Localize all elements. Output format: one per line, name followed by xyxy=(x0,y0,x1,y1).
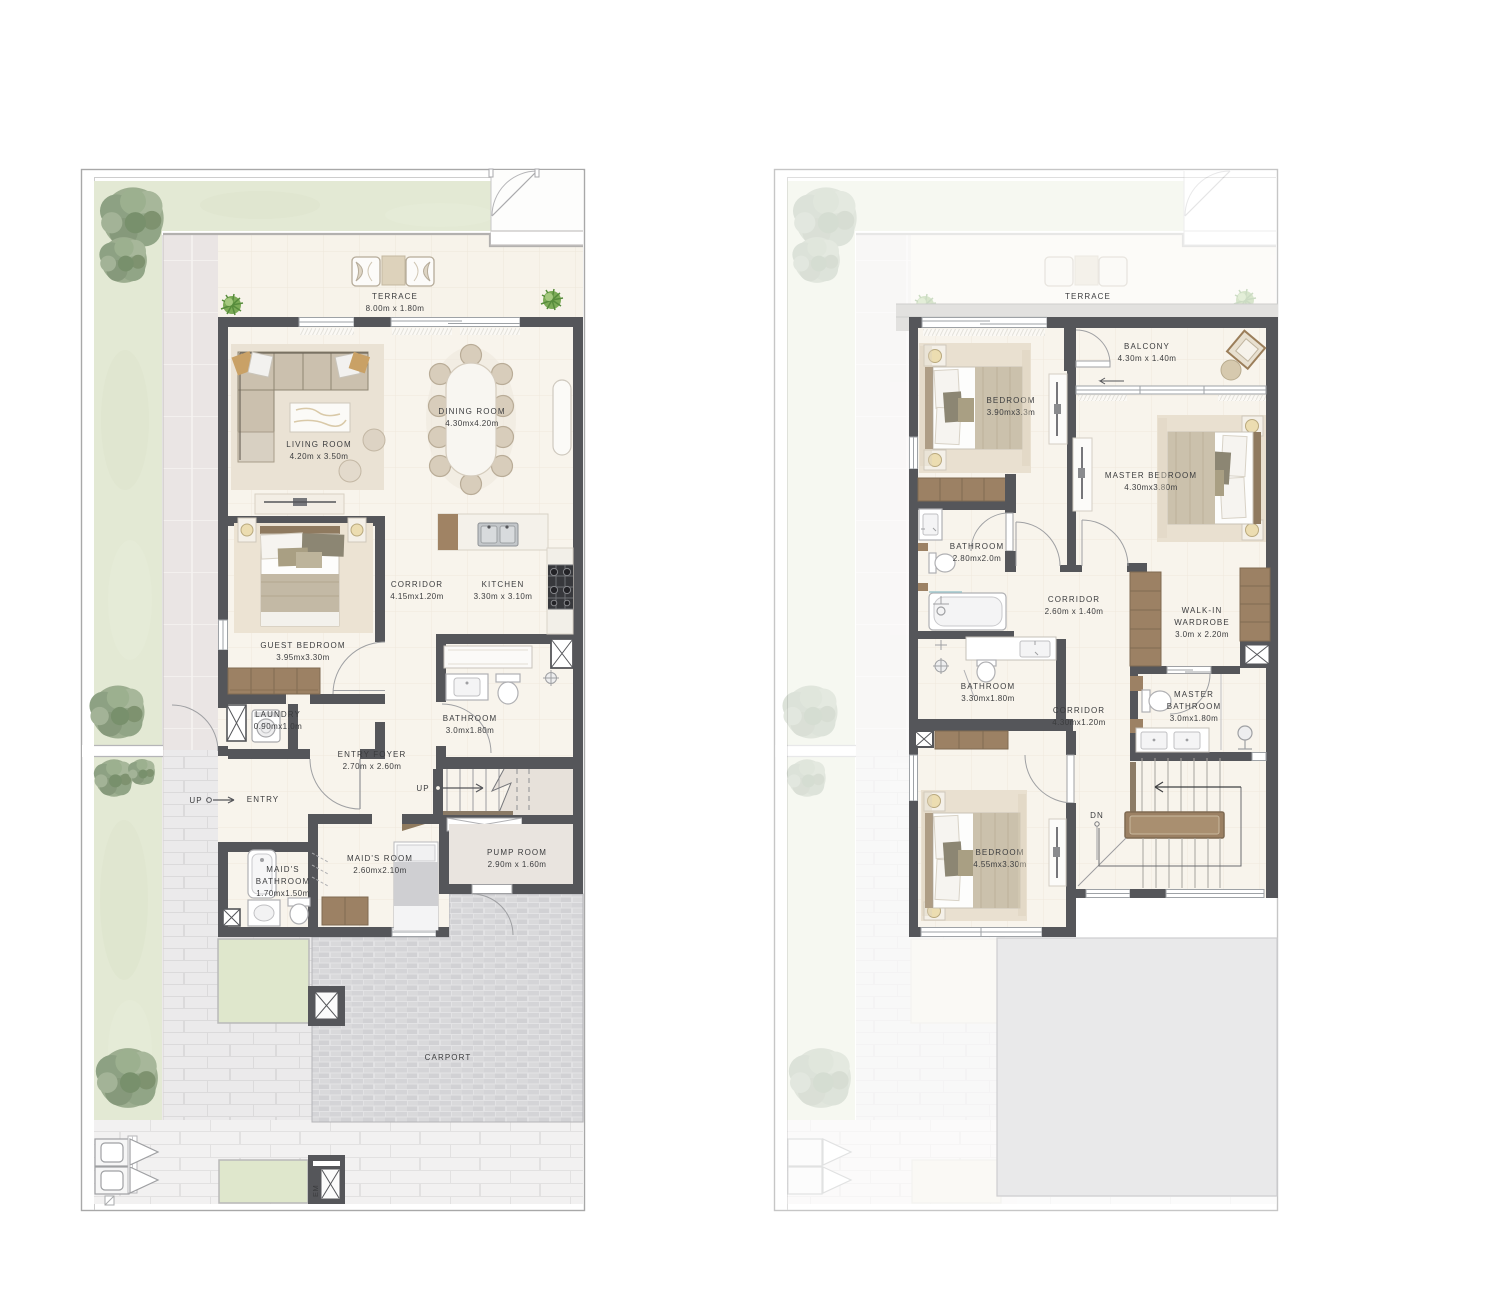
svg-text:KITCHEN: KITCHEN xyxy=(482,580,525,589)
svg-text:LIVING ROOM: LIVING ROOM xyxy=(286,440,351,449)
svg-text:0.90mx1.0m: 0.90mx1.0m xyxy=(254,722,303,731)
svg-text:2.60mx2.10m: 2.60mx2.10m xyxy=(353,866,406,875)
svg-text:BATHROOM: BATHROOM xyxy=(256,877,310,886)
svg-text:TERRACE: TERRACE xyxy=(1065,292,1111,301)
svg-text:2.90m x 1.60m: 2.90m x 1.60m xyxy=(488,860,547,869)
svg-text:3.0mx1.80m: 3.0mx1.80m xyxy=(1170,714,1219,723)
svg-text:CORRIDOR: CORRIDOR xyxy=(1048,595,1100,604)
svg-text:MAID'S: MAID'S xyxy=(266,865,299,874)
svg-text:GUEST BEDROOM: GUEST BEDROOM xyxy=(260,641,345,650)
svg-text:BATHROOM: BATHROOM xyxy=(1167,702,1221,711)
svg-text:MASTER: MASTER xyxy=(1174,690,1214,699)
svg-text:4.15mx1.20m: 4.15mx1.20m xyxy=(390,592,443,601)
svg-text:DINING ROOM: DINING ROOM xyxy=(438,407,505,416)
svg-text:WARDROBE: WARDROBE xyxy=(1174,618,1230,627)
svg-text:UP: UP xyxy=(416,784,429,793)
svg-text:BATHROOM: BATHROOM xyxy=(961,682,1015,691)
svg-text:TERRACE: TERRACE xyxy=(372,292,418,301)
svg-text:BATHROOM: BATHROOM xyxy=(443,714,497,723)
svg-text:UP: UP xyxy=(189,796,202,805)
svg-text:BATHROOM: BATHROOM xyxy=(950,542,1004,551)
svg-text:CARPORT: CARPORT xyxy=(425,1053,472,1062)
svg-text:MASTER BEDROOM: MASTER BEDROOM xyxy=(1105,471,1197,480)
svg-text:2.60m x 1.40m: 2.60m x 1.40m xyxy=(1045,607,1104,616)
svg-text:CORRIDOR: CORRIDOR xyxy=(1053,706,1105,715)
svg-text:3.0m x 2.20m: 3.0m x 2.20m xyxy=(1175,630,1229,639)
svg-text:CORRIDOR: CORRIDOR xyxy=(391,580,443,589)
svg-text:3.95mx3.30m: 3.95mx3.30m xyxy=(276,653,329,662)
svg-text:8.00m x 1.80m: 8.00m x 1.80m xyxy=(366,304,425,313)
svg-text:PUMP ROOM: PUMP ROOM xyxy=(487,848,547,857)
svg-text:ENTRY: ENTRY xyxy=(247,795,279,804)
svg-text:2.70m x 2.60m: 2.70m x 2.60m xyxy=(343,762,402,771)
svg-text:3.0mx1.80m: 3.0mx1.80m xyxy=(446,726,495,735)
svg-text:4.30mx1.20m: 4.30mx1.20m xyxy=(1052,718,1105,727)
svg-text:WALK-IN: WALK-IN xyxy=(1182,606,1223,615)
svg-text:MAID'S ROOM: MAID'S ROOM xyxy=(347,854,413,863)
svg-text:4.30m x 1.40m: 4.30m x 1.40m xyxy=(1118,354,1177,363)
svg-text:BEDROOM: BEDROOM xyxy=(975,848,1024,857)
svg-text:3.30mx1.80m: 3.30mx1.80m xyxy=(961,694,1014,703)
svg-text:3.30m x 3.10m: 3.30m x 3.10m xyxy=(474,592,533,601)
svg-text:4.30mx4.20m: 4.30mx4.20m xyxy=(445,419,498,428)
svg-text:DN: DN xyxy=(1090,811,1104,820)
svg-text:4.30mx3.80m: 4.30mx3.80m xyxy=(1124,483,1177,492)
svg-text:LAUNDRY: LAUNDRY xyxy=(255,710,301,719)
svg-text:EM: EM xyxy=(311,1185,320,1197)
svg-text:1.70mx1.50m: 1.70mx1.50m xyxy=(256,889,309,898)
svg-text:4.20m x 3.50m: 4.20m x 3.50m xyxy=(290,452,349,461)
svg-text:BALCONY: BALCONY xyxy=(1124,342,1170,351)
svg-text:ENTRY FOYER: ENTRY FOYER xyxy=(338,750,407,759)
svg-text:2.80mx2.0m: 2.80mx2.0m xyxy=(953,554,1002,563)
